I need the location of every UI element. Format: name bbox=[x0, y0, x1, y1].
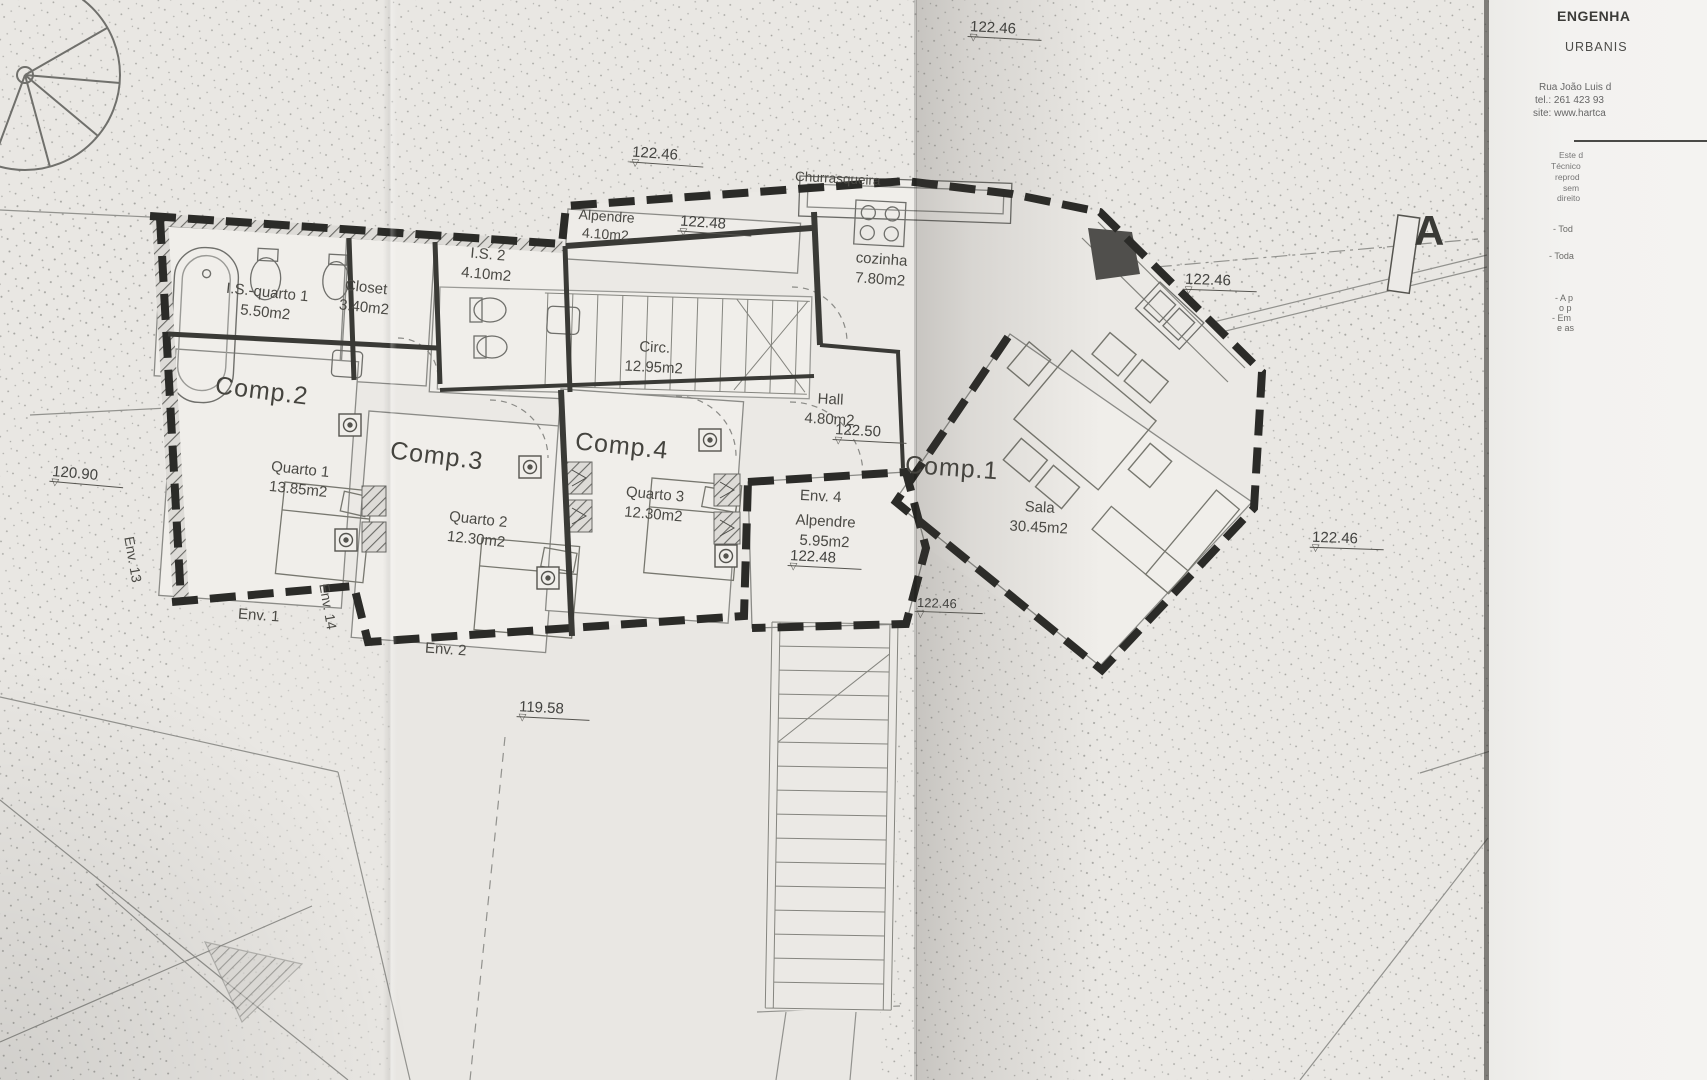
level-triangle-icon: ▽ bbox=[1311, 543, 1319, 554]
room-area: 4.10m2 bbox=[577, 223, 634, 245]
envelope-label-env4: Env. 4 bbox=[800, 486, 842, 508]
title-block-panel: ENGENHA URBANIS Rua João Luis d tel.: 26… bbox=[1489, 0, 1707, 1080]
room-area: 12.95m2 bbox=[624, 356, 683, 379]
elevation-marker: 122.48 ▽ bbox=[788, 547, 863, 570]
room-name: Comp.1 bbox=[904, 449, 1000, 488]
envelope-name: Env. 4 bbox=[800, 486, 842, 508]
envelope-name: Env. 2 bbox=[424, 639, 467, 661]
envelope-label-env1: Env. 1 bbox=[237, 605, 280, 627]
room-label-alpendre-top: Alpendre 4.10m2 bbox=[577, 205, 635, 245]
elevation-marker: 122.46 ▽ bbox=[968, 18, 1043, 41]
elevation-marker: 122.50 ▽ bbox=[833, 421, 908, 444]
level-triangle-icon: ▽ bbox=[969, 32, 977, 43]
room-label-quarto3: Quarto 3 12.30m2 bbox=[623, 483, 685, 527]
section-marker-label: A bbox=[1414, 207, 1444, 254]
floor-plan-photo: I.S.-quarto 1 5.50m2 Closet 3.40m2 I.S. … bbox=[0, 0, 1707, 1080]
title-block-fineprint-line: sem bbox=[1563, 183, 1579, 193]
room-name: Alpendre bbox=[795, 510, 856, 533]
title-block-note: o p bbox=[1559, 303, 1572, 313]
room-area: 30.45m2 bbox=[1009, 516, 1068, 539]
level-triangle-icon: ▽ bbox=[679, 227, 687, 239]
envelope-label-env2: Env. 2 bbox=[424, 639, 467, 661]
elevation-marker: 119.58 ▽ bbox=[517, 698, 591, 721]
title-block-phone: tel.: 261 423 93 bbox=[1535, 95, 1604, 106]
room-label-cozinha: cozinha 7.80m2 bbox=[854, 248, 908, 291]
title-block-note: - Toda bbox=[1549, 251, 1574, 261]
room-label-quarto2: Quarto 2 12.30m2 bbox=[446, 507, 508, 552]
title-block-address: Rua João Luis d bbox=[1539, 82, 1611, 93]
room-area: 7.80m2 bbox=[854, 268, 907, 291]
room-label-is2: I.S. 2 4.10m2 bbox=[460, 243, 513, 286]
level-triangle-icon: ▽ bbox=[916, 609, 924, 620]
title-block-note: - Tod bbox=[1553, 224, 1573, 234]
elevation-marker: 122.46 ▽ bbox=[1310, 529, 1385, 551]
elevation-marker: 122.46 ▽ bbox=[915, 595, 983, 614]
title-block-note: - A p bbox=[1555, 293, 1573, 303]
room-label-quarto1: Quarto 1 13.85m2 bbox=[268, 457, 330, 502]
level-triangle-icon: ▽ bbox=[789, 561, 797, 572]
envelope-name: Env. 1 bbox=[237, 605, 280, 627]
title-block-discipline: ENGENHA bbox=[1557, 8, 1631, 24]
room-label-env4-alpendre: Alpendre 5.95m2 bbox=[794, 510, 856, 552]
level-triangle-icon: ▽ bbox=[631, 158, 639, 170]
title-block-fineprint-line: reprod bbox=[1555, 172, 1580, 182]
level-triangle-icon: ▽ bbox=[1184, 285, 1192, 296]
title-block-fineprint-line: direito bbox=[1557, 193, 1580, 203]
room-label-sala: Sala 30.45m2 bbox=[1009, 496, 1069, 538]
elevation-marker: 122.46 ▽ bbox=[1183, 271, 1258, 293]
room-name: Hall bbox=[805, 389, 856, 411]
title-block-fineprint-line: Este d bbox=[1559, 150, 1583, 160]
title-block-divider bbox=[1574, 140, 1707, 142]
title-block-fineprint-line: Técnico bbox=[1551, 161, 1581, 171]
title-block-note: e as bbox=[1557, 323, 1574, 333]
level-triangle-icon: ▽ bbox=[834, 435, 842, 446]
room-label-closet: Closet 3.40m2 bbox=[338, 275, 392, 319]
room-label-circ: Circ. 12.95m2 bbox=[624, 336, 684, 378]
title-block-note: - Em bbox=[1552, 313, 1571, 323]
title-block-subtitle: URBANIS bbox=[1565, 40, 1628, 54]
section-marker-a: A bbox=[1414, 207, 1444, 255]
title-block-website: site: www.hartca bbox=[1533, 108, 1606, 119]
room-label-comp1: Comp.1 bbox=[904, 449, 1000, 488]
level-triangle-icon: ▽ bbox=[518, 712, 526, 723]
level-triangle-icon: ▽ bbox=[51, 477, 60, 489]
